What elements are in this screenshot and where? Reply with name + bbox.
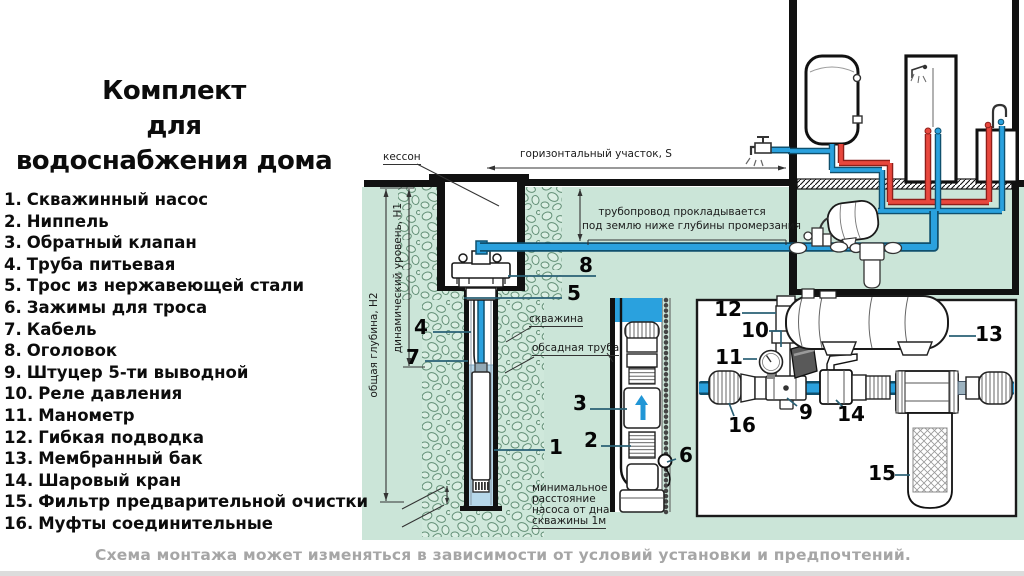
callout-11-manometer: 11 — [715, 347, 743, 367]
callout-3-check-valve: 3 — [573, 393, 587, 413]
callout-16-couplings: 16 — [728, 415, 756, 435]
footer-caption: Схема монтажа может изменяться в зависим… — [0, 546, 1006, 564]
list-item: 12.Гибкая подводка — [4, 427, 360, 449]
title-line-3: водоснабжения дома — [0, 144, 348, 179]
list-item: 7.Кабель — [4, 319, 360, 341]
title-line-1: Комплект — [0, 74, 348, 109]
callout-8-wellhead: 8 — [579, 255, 593, 275]
parts-list: 1.Скважинный насос 2.Ниппель 3.Обратный … — [4, 189, 360, 535]
list-item: 4.Труба питьевая — [4, 254, 360, 276]
callout-13-membrane-tank: 13 — [975, 324, 1003, 344]
label-pipeline-note-1: трубопровод прокладывается — [589, 206, 775, 218]
list-item: 2.Ниппель — [4, 211, 360, 233]
list-item: 9.Штуцер 5-ти выводной — [4, 362, 360, 384]
list-item: 13.Мембранный бак — [4, 448, 360, 470]
label-min-distance-4: скважины 1м — [532, 516, 606, 529]
title-line-2: для — [0, 109, 348, 144]
list-item: 14.Шаровый кран — [4, 470, 360, 492]
callout-10-pressure-relay: 10 — [741, 320, 769, 340]
outdoor-tap — [746, 137, 790, 166]
callout-12-flexible-hose: 12 — [714, 299, 742, 319]
label-pipeline-note-2: под землю ниже глубины промерзания — [582, 220, 782, 232]
list-item: 8.Оголовок — [4, 340, 360, 362]
list-item: 10.Реле давления — [4, 383, 360, 405]
pump-detail-view — [610, 298, 672, 512]
list-item: 1.Скважинный насос — [4, 189, 360, 211]
callout-1-pump: 1 — [549, 437, 563, 457]
callout-5-steel-rope: 5 — [567, 283, 581, 303]
callout-15-pre-filter: 15 — [868, 463, 896, 483]
bottom-divider — [0, 571, 1024, 576]
callout-7-cable: 7 — [406, 347, 420, 367]
label-total-depth: общая глубина, Н2 — [368, 292, 380, 397]
callout-14-ball-valve: 14 — [837, 404, 865, 424]
label-caisson: кессон — [383, 151, 421, 165]
label-dynamic-level: динамический уровень, Н1 — [392, 203, 404, 353]
list-item: 11.Манометр — [4, 405, 360, 427]
label-borehole: скважина — [529, 313, 583, 327]
water-heater — [806, 56, 862, 144]
label-horizontal-section: горизонтальный участок, S — [520, 148, 672, 160]
water-supply-kit-poster: Комплект для водоснабжения дома 1.Скважи… — [0, 0, 1024, 576]
sink — [977, 105, 1017, 182]
callout-2-nipple: 2 — [584, 430, 598, 450]
list-item: 5.Трос из нержавеющей стали — [4, 275, 360, 297]
list-item: 16.Муфты соединительные — [4, 513, 360, 535]
list-item: 6.Зажимы для троса — [4, 297, 360, 319]
callout-9-five-way-fitting: 9 — [799, 402, 813, 422]
callout-6-rope-clamps: 6 — [679, 445, 693, 465]
label-casing-pipe: обсадная труба — [532, 342, 619, 356]
callout-4-drinking-pipe: 4 — [414, 317, 428, 337]
page-title: Комплект для водоснабжения дома — [0, 74, 348, 179]
list-item: 3.Обратный клапан — [4, 232, 360, 254]
list-item: 15.Фильтр предварительной очистки — [4, 491, 360, 513]
